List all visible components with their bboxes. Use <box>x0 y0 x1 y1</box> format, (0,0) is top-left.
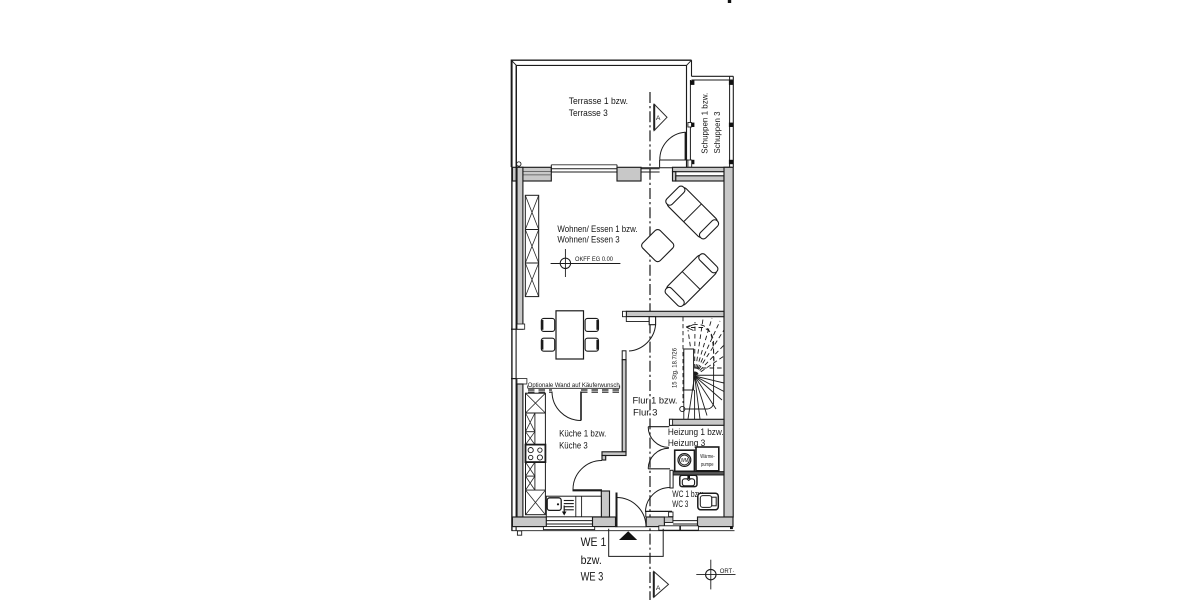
svg-text:Wohnen/ Essen 1 bzw.: Wohnen/ Essen 1 bzw. <box>557 224 637 235</box>
svg-text:Wärme-: Wärme- <box>700 454 715 460</box>
svg-text:pumpe: pumpe <box>701 462 714 468</box>
svg-text:Heizung 1 bzw.: Heizung 1 bzw. <box>668 426 724 437</box>
svg-text:Küche 1 bzw.: Küche 1 bzw. <box>559 428 606 439</box>
svg-text:A: A <box>656 585 661 592</box>
svg-text:bzw.: bzw. <box>581 554 602 567</box>
svg-text:Schuppen 3: Schuppen 3 <box>713 111 722 153</box>
svg-text:Flur 1 bzw.: Flur 1 bzw. <box>633 395 678 406</box>
svg-text:Flur 3: Flur 3 <box>633 407 658 418</box>
svg-text:15 Stg. 18.7/26: 15 Stg. 18.7/26 <box>673 347 679 388</box>
svg-text:A: A <box>656 115 661 122</box>
svg-text:WC 3: WC 3 <box>672 499 688 509</box>
svg-text:ORT·: ORT· <box>720 568 735 575</box>
svg-text:Schuppen 1 bzw.: Schuppen 1 bzw. <box>701 93 710 154</box>
svg-text:Wohnen/ Essen 3: Wohnen/ Essen 3 <box>557 235 619 246</box>
svg-text:Optionale Wand auf Käuferwunsc: Optionale Wand auf Käuferwunsch <box>528 382 620 389</box>
svg-text:Terrasse 1 bzw.: Terrasse 1 bzw. <box>569 96 628 106</box>
svg-text:OKFF EG 0.00: OKFF EG 0.00 <box>575 256 614 263</box>
svg-text:WE 3: WE 3 <box>581 571 604 584</box>
svg-text:WE 1: WE 1 <box>581 536 607 549</box>
svg-text:Terrasse 3: Terrasse 3 <box>569 108 608 118</box>
svg-text:Küche 3: Küche 3 <box>559 440 588 451</box>
svg-text:WM: WM <box>681 458 689 464</box>
